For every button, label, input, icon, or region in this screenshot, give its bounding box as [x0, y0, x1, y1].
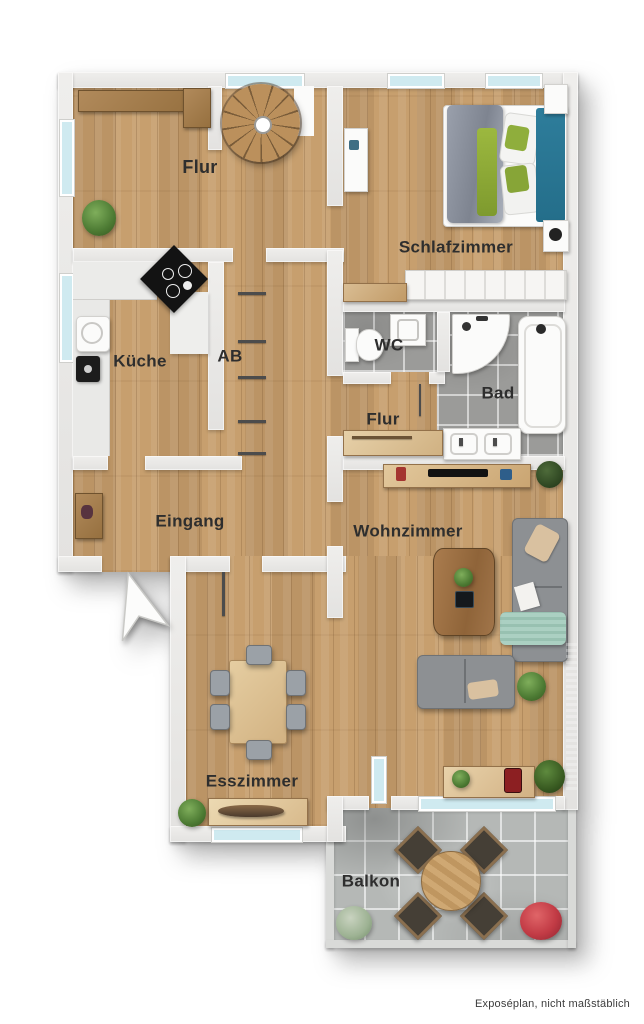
stove-burner-3 [166, 284, 180, 298]
room-label-eingang: Eingang [155, 513, 224, 530]
balcony-table [421, 851, 481, 911]
window-left-kueche [60, 274, 74, 362]
entrance-door-leaf [222, 572, 225, 616]
wall-lower-left [170, 556, 186, 842]
stove-burner-1 [162, 268, 174, 280]
bed-cushion-green-2 [504, 165, 529, 194]
bench-decor [352, 436, 412, 439]
wall-wc-bad-divider [437, 312, 450, 372]
nightstand-lamp [549, 228, 562, 241]
wall-watermark [566, 640, 577, 790]
washbasin-faucet-1 [459, 438, 463, 446]
wall-bottom-a [58, 556, 102, 572]
wall-wohnzimmer-bottom-b [391, 796, 419, 810]
nightstand-top [544, 84, 568, 114]
wall-flur-bottom-a [73, 248, 233, 262]
bathtub-inner [524, 324, 562, 428]
window-esszimmer [212, 828, 302, 842]
sofa-bottom-split [464, 659, 466, 703]
dining-chair [210, 704, 230, 730]
wall-wc-bottom-a [343, 372, 391, 384]
sofa-throw-mint [500, 612, 566, 645]
bed-cushion-green-1 [504, 124, 530, 151]
stove-burner-4 [183, 281, 192, 290]
sideboard-books-blue [500, 469, 512, 480]
room-label-balkon: Balkon [342, 873, 400, 890]
shower-drain [462, 322, 471, 331]
room-label-bad: Bad [481, 385, 514, 402]
esszimmer-plant [178, 799, 206, 827]
balcony-wall-left [326, 826, 334, 948]
coffee-table-plant [454, 568, 473, 587]
sideboard-plant [536, 461, 563, 488]
washbasin-faucet-2 [493, 438, 497, 446]
balcony-plant-red [520, 902, 562, 940]
schlafzimmer-dresser [344, 128, 368, 192]
sideboard-books-red [396, 467, 406, 481]
washbasin-1 [450, 433, 478, 455]
wall-main-vert-a [327, 86, 343, 206]
balcony-door-leaf [372, 757, 386, 803]
kitchen-sink-basin [81, 322, 103, 344]
tv-bar [428, 469, 488, 477]
schlafzimmer-wardrobe [405, 270, 567, 300]
dining-table [229, 660, 287, 744]
coffee-table-tablet [455, 591, 474, 608]
bed-runner-teal [536, 108, 565, 222]
schlafzimmer-shelf [343, 283, 407, 302]
sideboard-bottom-plant [452, 770, 470, 788]
flur-sideboard [78, 90, 196, 112]
room-label-flur-top: Flur [182, 158, 217, 176]
coffee-machine [504, 768, 522, 793]
dining-chair [210, 670, 230, 696]
floorplan-page: Flur Schlafzimmer Küche AB WC Bad Flur E… [0, 0, 644, 1024]
flur-mitte-bench [343, 430, 443, 456]
wall-connector [327, 796, 343, 842]
room-label-schlafzimmer: Schlafzimmer [399, 239, 513, 256]
apartment-floorplan: Flur Schlafzimmer Küche AB WC Bad Flur E… [0, 0, 644, 1024]
flur-cabinet [183, 88, 211, 128]
bed-blanket-lime [477, 128, 497, 216]
stairs-center-pole [254, 116, 272, 134]
shower-faucet [476, 316, 488, 321]
room-label-kueche: Küche [113, 353, 166, 370]
window-top-schlafzimmer-1 [388, 74, 444, 88]
washbasin-2 [484, 433, 512, 455]
room-label-ab: AB [217, 348, 242, 365]
wall-wc-bottom-b [429, 372, 445, 384]
wall-eingang-top-b [145, 456, 242, 470]
balcony-plant-white [336, 906, 372, 940]
flur-plant [82, 200, 116, 236]
window-left-flur [60, 120, 74, 196]
eingang-closet-decor [81, 505, 93, 519]
room-label-wohnzimmer: Wohnzimmer [353, 523, 462, 540]
ab-shelf-tick [238, 420, 266, 423]
window-top-schlafzimmer-2 [486, 74, 542, 88]
wohnzimmer-plant-corner [534, 760, 565, 793]
entrance-arrow-icon [106, 570, 172, 642]
room-label-esszimmer: Esszimmer [206, 773, 298, 790]
wohnzimmer-plant [517, 672, 546, 701]
dining-chair [286, 670, 306, 696]
dining-chair [246, 740, 272, 760]
wc-door-leaf [419, 384, 421, 416]
ab-shelf-tick [238, 292, 266, 295]
dresser-decor [349, 140, 359, 150]
dining-chair [246, 645, 272, 665]
ab-shelf-tick [238, 452, 266, 455]
footer-disclaimer: Exposéplan, nicht maßstäblich [475, 998, 630, 1010]
room-label-flur-mitte: Flur [366, 411, 399, 428]
ab-shelf-tick [238, 340, 266, 343]
wall-eingang-top-a [73, 456, 108, 470]
window-wohnzimmer-balkon [419, 797, 555, 811]
balcony-wall-right [568, 808, 576, 948]
dining-chair [286, 704, 306, 730]
kitchen-oven-dot [84, 365, 92, 373]
balcony-wall-bottom [326, 940, 576, 948]
stove-burner-2 [178, 264, 192, 278]
wall-main-vert-c [327, 436, 343, 502]
ab-shelf-tick [238, 376, 266, 379]
wall-main-vert-b [327, 250, 343, 376]
bathtub-faucet [536, 324, 546, 334]
wall-main-vert-d [327, 546, 343, 618]
room-label-wc: WC [375, 337, 404, 354]
sofa-bottom [417, 655, 515, 709]
ship-model [218, 805, 284, 817]
